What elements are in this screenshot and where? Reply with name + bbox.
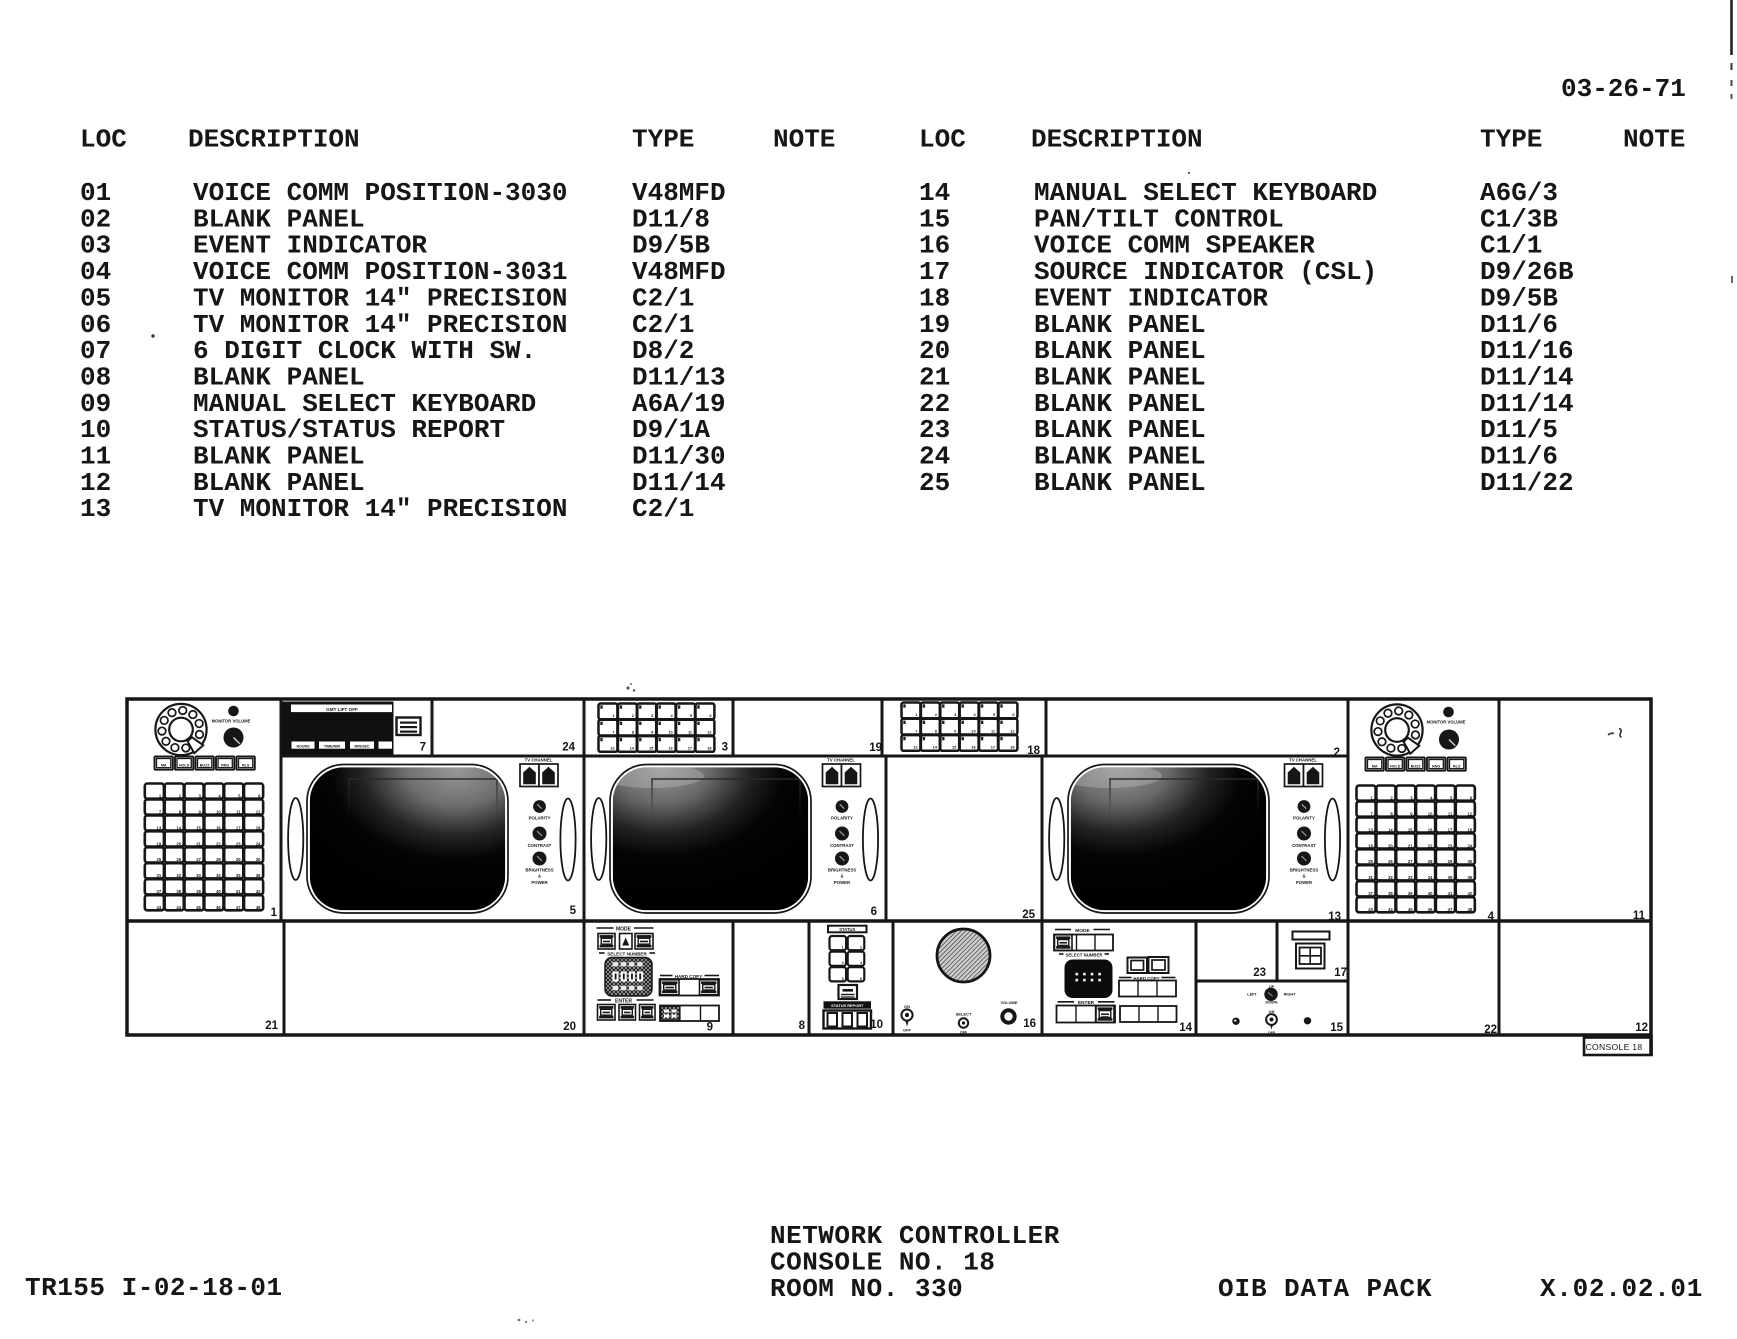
- svg-text:10: 10: [1428, 811, 1433, 816]
- svg-text:BUZZ: BUZZ: [200, 763, 211, 767]
- svg-text:31: 31: [1368, 875, 1373, 880]
- svg-text:BRIGHTNESS: BRIGHTNESS: [525, 868, 553, 873]
- svg-text:19: 19: [1368, 843, 1373, 848]
- svg-text:48: 48: [1467, 907, 1472, 912]
- svg-text:7: 7: [612, 729, 614, 734]
- svg-text:BRIGHTNESS: BRIGHTNESS: [828, 868, 856, 873]
- svg-text:C2/1: C2/1: [632, 494, 694, 524]
- svg-text:18: 18: [256, 825, 261, 830]
- svg-text:BLANK PANEL: BLANK PANEL: [1034, 468, 1206, 498]
- svg-text:CONSOLE 18: CONSOLE 18: [1586, 1042, 1643, 1052]
- svg-text:48: 48: [256, 905, 261, 910]
- svg-text:21: 21: [265, 1020, 278, 1032]
- svg-text:13: 13: [157, 825, 162, 830]
- svg-text:POWER: POWER: [531, 880, 548, 885]
- svg-text:TV MONITOR 14" PRECISION: TV MONITOR 14" PRECISION: [193, 494, 567, 524]
- svg-text:15: 15: [1330, 1022, 1343, 1034]
- svg-text:&: &: [840, 874, 843, 879]
- svg-text:20: 20: [176, 841, 181, 846]
- svg-text:27: 27: [1408, 859, 1413, 864]
- svg-text:SELECT: SELECT: [956, 1012, 972, 1017]
- svg-text:POLARITY: POLARITY: [1293, 816, 1315, 821]
- svg-text:39: 39: [1408, 891, 1413, 896]
- svg-text:17: 17: [236, 825, 241, 830]
- svg-text:5: 5: [570, 905, 577, 917]
- svg-text:14: 14: [1388, 827, 1393, 832]
- svg-text:12: 12: [1467, 811, 1472, 816]
- svg-text:ROOM NO. 330: ROOM NO. 330: [770, 1274, 963, 1304]
- svg-text:NOTE: NOTE: [773, 125, 835, 155]
- svg-text:44: 44: [1388, 907, 1393, 912]
- svg-text:CONTRAST: CONTRAST: [830, 843, 854, 848]
- svg-text:6: 6: [871, 906, 877, 918]
- svg-text:STATUS: STATUS: [839, 927, 855, 932]
- svg-text:9: 9: [707, 1022, 713, 1034]
- svg-text:24: 24: [562, 742, 575, 754]
- svg-text:46: 46: [1428, 907, 1433, 912]
- svg-text:42: 42: [256, 889, 261, 894]
- svg-text:RIGHT: RIGHT: [1284, 993, 1296, 997]
- svg-text:35: 35: [1448, 875, 1453, 880]
- svg-text:30: 30: [256, 857, 261, 862]
- svg-text:OFF: OFF: [903, 1028, 912, 1033]
- svg-text:MA: MA: [1372, 764, 1378, 768]
- svg-text:33: 33: [1408, 875, 1413, 880]
- svg-text:BRIGHTNESS: BRIGHTNESS: [1290, 868, 1318, 873]
- svg-text:45: 45: [196, 905, 201, 910]
- svg-text:&: &: [538, 874, 541, 879]
- svg-text:MODE: MODE: [616, 926, 632, 932]
- svg-text:8: 8: [799, 1020, 806, 1032]
- svg-text:27: 27: [196, 857, 201, 862]
- svg-text:RLS: RLS: [1453, 764, 1461, 768]
- svg-text:5: 5: [842, 977, 844, 981]
- svg-text:35: 35: [236, 873, 241, 878]
- svg-text:TYPE: TYPE: [632, 125, 694, 155]
- svg-text:17: 17: [1448, 827, 1453, 832]
- svg-text:2: 2: [860, 946, 862, 950]
- svg-text:15: 15: [1408, 827, 1413, 832]
- svg-text:25: 25: [1022, 909, 1035, 921]
- svg-text:RLS: RLS: [242, 763, 250, 767]
- svg-text:22: 22: [1484, 1024, 1497, 1036]
- svg-text:RNG: RNG: [221, 763, 229, 767]
- svg-text:33: 33: [196, 873, 201, 878]
- svg-text:18: 18: [1467, 827, 1472, 832]
- svg-text:OFF: OFF: [960, 1031, 968, 1035]
- svg-text:11: 11: [236, 809, 241, 814]
- svg-text:41: 41: [236, 889, 241, 894]
- svg-text:TIME/MIN: TIME/MIN: [324, 744, 341, 748]
- svg-text:1: 1: [842, 946, 844, 950]
- svg-text:D11/22: D11/22: [1480, 468, 1574, 498]
- svg-text:POWER: POWER: [834, 880, 851, 885]
- svg-text:16: 16: [1023, 1018, 1036, 1030]
- svg-text:25: 25: [157, 857, 162, 862]
- svg-text:16: 16: [1428, 827, 1433, 832]
- svg-text:03-26-71: 03-26-71: [1561, 74, 1686, 104]
- svg-text:4: 4: [1488, 911, 1495, 923]
- svg-text:OIB DATA PACK: OIB DATA PACK: [1218, 1274, 1433, 1304]
- svg-text:25: 25: [919, 468, 950, 498]
- svg-text:24: 24: [256, 841, 261, 846]
- svg-text:23: 23: [236, 841, 241, 846]
- svg-text:21: 21: [1408, 843, 1413, 848]
- svg-text:34: 34: [1428, 875, 1433, 880]
- svg-text:LOC: LOC: [919, 125, 966, 155]
- svg-text:17: 17: [1334, 967, 1347, 979]
- svg-text:7: 7: [915, 728, 917, 733]
- svg-text:SELECT NUMBER: SELECT NUMBER: [607, 952, 647, 957]
- svg-text:13: 13: [1368, 827, 1373, 832]
- svg-text:46: 46: [216, 905, 221, 910]
- svg-text:11: 11: [1633, 910, 1646, 922]
- svg-text:DESCRIPTION: DESCRIPTION: [188, 125, 360, 155]
- svg-text:CONTRAST: CONTRAST: [528, 843, 552, 848]
- svg-text:VOLUME: VOLUME: [1000, 1000, 1017, 1005]
- svg-text:23: 23: [1253, 967, 1266, 979]
- svg-text:38: 38: [176, 889, 181, 894]
- svg-text:DOWN: DOWN: [1265, 1001, 1277, 1005]
- svg-text:1: 1: [271, 907, 278, 919]
- svg-text:28: 28: [1428, 859, 1433, 864]
- svg-text:12: 12: [1635, 1022, 1648, 1034]
- svg-text:47: 47: [1448, 907, 1453, 912]
- svg-text:19: 19: [157, 841, 162, 846]
- svg-text:TV CHANNEL: TV CHANNEL: [827, 758, 855, 763]
- svg-text:NOTE: NOTE: [1623, 125, 1685, 155]
- svg-text:ON: ON: [904, 1004, 910, 1009]
- svg-text:11: 11: [1448, 811, 1453, 816]
- svg-text:10: 10: [216, 809, 221, 814]
- svg-text:HOLD: HOLD: [1390, 764, 1401, 768]
- svg-text:43: 43: [1368, 907, 1373, 912]
- svg-text:ENTER: ENTER: [615, 998, 632, 1004]
- svg-text:26: 26: [1388, 859, 1393, 864]
- svg-text:14: 14: [1179, 1022, 1192, 1034]
- svg-text:40: 40: [1428, 891, 1433, 896]
- svg-text:20: 20: [1388, 843, 1393, 848]
- svg-text:41: 41: [1448, 891, 1453, 896]
- svg-text:37: 37: [157, 889, 162, 894]
- svg-text:29: 29: [1448, 859, 1453, 864]
- svg-text:28: 28: [216, 857, 221, 862]
- svg-text:TV CHANNEL: TV CHANNEL: [1289, 758, 1317, 763]
- svg-text:36: 36: [1467, 875, 1472, 880]
- svg-text:RNG: RNG: [1432, 764, 1440, 768]
- svg-text:32: 32: [176, 873, 181, 878]
- svg-text:38: 38: [1388, 891, 1393, 896]
- svg-text:37: 37: [1368, 891, 1373, 896]
- svg-text:47: 47: [236, 905, 241, 910]
- svg-text:3: 3: [842, 961, 844, 965]
- svg-text:2: 2: [1334, 747, 1340, 759]
- svg-text:X.02.02.01: X.02.02.01: [1540, 1274, 1703, 1304]
- svg-text:4: 4: [860, 961, 862, 965]
- svg-text:3: 3: [722, 742, 728, 754]
- svg-text:MONITOR VOLUME: MONITOR VOLUME: [212, 719, 251, 724]
- svg-text:MONITOR VOLUME: MONITOR VOLUME: [1427, 720, 1466, 725]
- svg-text:30: 30: [1467, 859, 1472, 864]
- svg-text:17: 17: [688, 746, 692, 751]
- svg-text:43: 43: [157, 905, 162, 910]
- svg-text:TYPE: TYPE: [1480, 125, 1542, 155]
- svg-text:44: 44: [176, 905, 181, 910]
- svg-text:22: 22: [216, 841, 221, 846]
- svg-text:32: 32: [1388, 875, 1393, 880]
- svg-text:POWER: POWER: [1296, 880, 1313, 885]
- svg-text:24: 24: [1467, 843, 1472, 848]
- svg-text:45: 45: [1408, 907, 1413, 912]
- svg-text:36: 36: [256, 873, 261, 878]
- svg-text:BUZZ: BUZZ: [1411, 764, 1422, 768]
- svg-text:14: 14: [176, 825, 181, 830]
- svg-text:GMT LIFT OFF: GMT LIFT OFF: [326, 707, 358, 712]
- svg-text:19: 19: [869, 742, 882, 754]
- svg-text:16: 16: [216, 825, 221, 830]
- svg-text:DESCRIPTION: DESCRIPTION: [1031, 125, 1203, 155]
- svg-text:OFF: OFF: [1268, 1031, 1276, 1035]
- svg-text:20: 20: [563, 1021, 576, 1033]
- svg-text:HOURS: HOURS: [297, 744, 311, 748]
- svg-text:26: 26: [176, 857, 181, 862]
- svg-text:MIN/SEC: MIN/SEC: [355, 744, 370, 748]
- svg-text:40: 40: [216, 889, 221, 894]
- svg-text:HOLD: HOLD: [179, 763, 190, 767]
- svg-text:15: 15: [196, 825, 201, 830]
- svg-text:CONTRAST: CONTRAST: [1292, 843, 1316, 848]
- svg-text:&: &: [1302, 874, 1305, 879]
- svg-text:21: 21: [196, 841, 201, 846]
- svg-text:STATUS REPORT: STATUS REPORT: [831, 1003, 864, 1008]
- svg-text:LOC: LOC: [80, 125, 127, 155]
- svg-text:10: 10: [971, 728, 975, 733]
- svg-text:17: 17: [991, 745, 995, 750]
- svg-text:13: 13: [1328, 911, 1341, 923]
- svg-text:31: 31: [157, 873, 162, 878]
- svg-text:42: 42: [1467, 891, 1472, 896]
- svg-text:MODE: MODE: [1075, 928, 1090, 934]
- svg-text:39: 39: [196, 889, 201, 894]
- svg-text:LEFT: LEFT: [1247, 993, 1257, 997]
- svg-text:6: 6: [860, 977, 862, 981]
- svg-text:10: 10: [668, 729, 672, 734]
- svg-text:7: 7: [420, 742, 426, 754]
- svg-text:25: 25: [1368, 859, 1373, 864]
- svg-text:SELECT NUMBER: SELECT NUMBER: [1065, 952, 1103, 957]
- svg-text:12: 12: [256, 809, 261, 814]
- svg-text:22: 22: [1428, 843, 1433, 848]
- svg-text:29: 29: [236, 857, 241, 862]
- svg-text:MA: MA: [161, 763, 167, 767]
- svg-text:13: 13: [80, 494, 111, 524]
- svg-text:TV CHANNEL: TV CHANNEL: [525, 758, 553, 763]
- svg-text:18: 18: [1027, 745, 1040, 757]
- svg-text:POLARITY: POLARITY: [529, 816, 551, 821]
- svg-text:POLARITY: POLARITY: [831, 816, 853, 821]
- svg-text:23: 23: [1448, 843, 1453, 848]
- svg-text:34: 34: [216, 873, 221, 878]
- svg-text:TR155 I-02-18-01: TR155 I-02-18-01: [25, 1273, 283, 1303]
